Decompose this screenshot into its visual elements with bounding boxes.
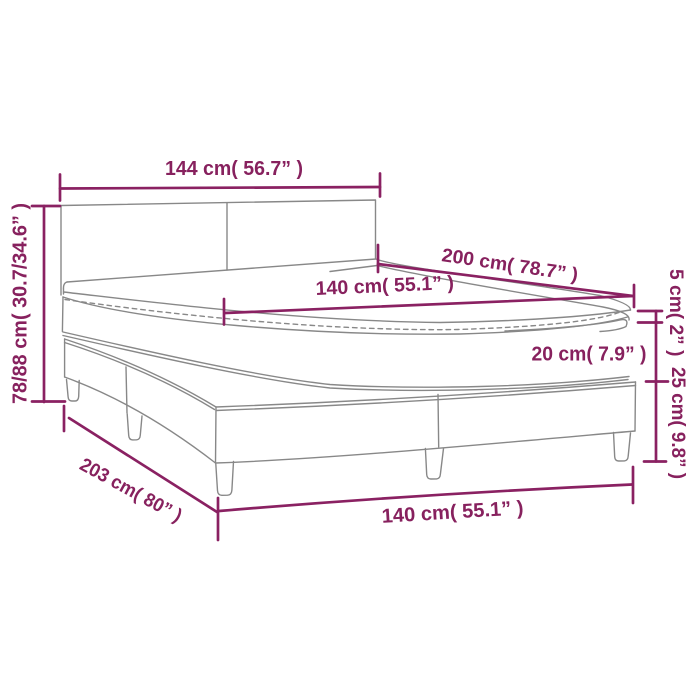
- svg-text:25 cm( 9.8” ): 25 cm( 9.8” ): [667, 367, 688, 479]
- svg-text:140 cm( 55.1” ): 140 cm( 55.1” ): [381, 497, 524, 528]
- svg-text:78/88 cm( 30.7/34.6” ): 78/88 cm( 30.7/34.6” ): [10, 203, 32, 404]
- svg-text:203 cm( 80” ): 203 cm( 80” ): [76, 454, 185, 526]
- svg-text:5 cm( 2” ): 5 cm( 2” ): [665, 269, 687, 357]
- svg-text:144 cm( 56.7” ): 144 cm( 56.7” ): [165, 158, 303, 180]
- svg-text:20 cm( 7.9” ): 20 cm( 7.9” ): [532, 344, 647, 366]
- svg-text:140 cm( 55.1” ): 140 cm( 55.1” ): [315, 272, 454, 300]
